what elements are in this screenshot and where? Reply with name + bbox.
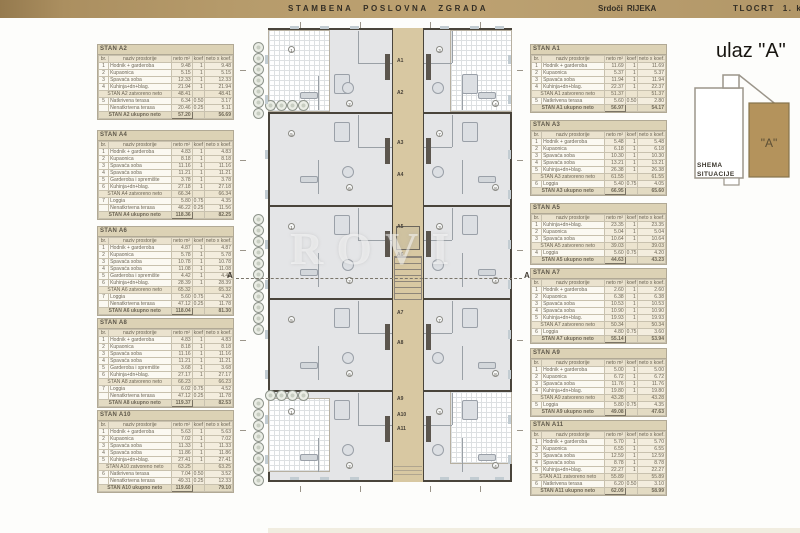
wall xyxy=(424,390,512,392)
window-mark xyxy=(265,280,268,289)
dimension-tick xyxy=(517,70,523,71)
kitchen-counter-icon xyxy=(426,138,431,164)
dimension-tick xyxy=(430,486,431,492)
bush-icon xyxy=(253,398,264,409)
bush-icon xyxy=(253,236,264,247)
room-number-badge: 4 xyxy=(492,100,499,107)
sofa-icon xyxy=(478,92,496,99)
dimension-tick xyxy=(240,250,246,251)
dimension-tick xyxy=(240,70,246,71)
window-mark xyxy=(265,415,268,424)
bush-icon xyxy=(253,453,264,464)
window-mark xyxy=(508,415,511,424)
dimension-tick xyxy=(480,22,481,28)
partition-wall xyxy=(358,31,359,63)
window-mark xyxy=(508,240,511,249)
wall xyxy=(268,205,392,207)
window-mark xyxy=(508,55,511,64)
partition-wall xyxy=(358,115,359,147)
partition-wall xyxy=(318,438,319,472)
window-mark xyxy=(265,150,268,159)
apartment-label-a1: A1 xyxy=(397,58,419,64)
bed-icon xyxy=(462,122,478,142)
wall xyxy=(268,390,392,392)
kitchen-counter-icon xyxy=(385,231,390,257)
window-mark xyxy=(265,190,268,199)
bush-icon xyxy=(287,390,298,401)
partition-wall xyxy=(462,346,463,380)
room-number-badge: 3 xyxy=(436,46,443,53)
window-mark xyxy=(265,330,268,339)
dimension-tick xyxy=(517,430,523,431)
room-number-badge: 3 xyxy=(436,408,443,415)
section-marker-right: A xyxy=(524,271,530,280)
table-icon xyxy=(432,352,444,364)
window-mark xyxy=(350,26,359,29)
room-number-badge: 1 xyxy=(288,223,295,230)
bed-icon xyxy=(334,308,350,328)
dimension-tick xyxy=(240,160,246,161)
bush-icon xyxy=(253,258,264,269)
window-mark xyxy=(508,280,511,289)
partition-wall xyxy=(462,160,463,194)
table-icon xyxy=(342,444,354,456)
dimension-tick xyxy=(240,430,246,431)
table-icon xyxy=(432,166,444,178)
apartment-label-a6: A6 xyxy=(397,252,419,258)
window-mark xyxy=(508,330,511,339)
apartment-label-a7: A7 xyxy=(397,310,419,316)
wall xyxy=(424,205,512,207)
window-mark xyxy=(470,26,479,29)
dimension-tick xyxy=(480,486,481,492)
bush-icon xyxy=(253,280,264,291)
bush-icon xyxy=(253,64,264,75)
bush-icon xyxy=(253,214,264,225)
window-mark xyxy=(508,370,511,379)
bush-icon xyxy=(253,75,264,86)
table-icon xyxy=(342,82,354,94)
apartment-label-a9: A9 xyxy=(397,396,419,402)
room-number-badge: 1 xyxy=(288,408,295,415)
partition-wall xyxy=(452,208,453,240)
bush-icon xyxy=(253,108,264,119)
partition-wall xyxy=(452,393,453,425)
floor-plan-drawing: 12345678123456781234A1A2A3A4A5A6A7A8A9A1… xyxy=(0,0,800,533)
room-number-badge: 8 xyxy=(492,370,499,377)
wall xyxy=(424,298,512,300)
partition-wall xyxy=(318,346,319,380)
bush-icon xyxy=(253,86,264,97)
apartment-label-a2: A2 xyxy=(397,90,419,96)
bed-icon xyxy=(462,308,478,328)
room-number-badge: 6 xyxy=(346,184,353,191)
window-mark xyxy=(508,455,511,464)
sofa-icon xyxy=(478,269,496,276)
partition-wall xyxy=(462,253,463,287)
room-number-badge: 1 xyxy=(288,46,295,53)
bush-icon xyxy=(276,100,287,111)
bush-icon xyxy=(253,97,264,108)
apartment-label-a11: A11 xyxy=(397,426,419,432)
partition-wall xyxy=(452,115,453,147)
entrance-steps-icon xyxy=(394,466,422,478)
partition-wall xyxy=(318,160,319,194)
window-mark xyxy=(290,477,299,480)
window-mark xyxy=(495,477,504,480)
terrace-area xyxy=(450,30,512,112)
apartment-label-a3: A3 xyxy=(397,140,419,146)
partition-wall xyxy=(318,76,319,110)
window-mark xyxy=(440,26,449,29)
room-number-badge: 5 xyxy=(288,130,295,137)
bush-icon xyxy=(276,390,287,401)
room-number-badge: 7 xyxy=(436,316,443,323)
apartment-label-a10: A10 xyxy=(397,412,419,418)
bush-icon xyxy=(253,225,264,236)
table-icon xyxy=(432,82,444,94)
terrace-area xyxy=(268,398,330,472)
window-mark xyxy=(350,477,359,480)
sofa-icon xyxy=(300,454,318,461)
dimension-tick xyxy=(517,160,523,161)
kitchen-counter-icon xyxy=(426,54,431,80)
window-mark xyxy=(265,240,268,249)
kitchen-counter-icon xyxy=(426,324,431,350)
kitchen-counter-icon xyxy=(385,324,390,350)
bush-icon xyxy=(253,291,264,302)
bush-icon xyxy=(253,442,264,453)
table-icon xyxy=(432,444,444,456)
partition-wall xyxy=(452,301,453,333)
kitchen-counter-icon xyxy=(426,231,431,257)
window-mark xyxy=(265,370,268,379)
kitchen-counter-icon xyxy=(426,416,431,442)
bed-icon xyxy=(334,400,350,420)
bush-icon xyxy=(253,420,264,431)
window-mark xyxy=(290,26,299,29)
window-mark xyxy=(265,55,268,64)
apartment-label-a5: A5 xyxy=(397,224,419,230)
bush-icon xyxy=(253,475,264,486)
room-number-badge: 4 xyxy=(492,462,499,469)
window-mark xyxy=(495,26,504,29)
apartment-label-a8: A8 xyxy=(397,340,419,346)
wall xyxy=(268,298,392,300)
dimension-tick xyxy=(360,486,361,492)
kitchen-counter-icon xyxy=(385,138,390,164)
apartment-label-a4: A4 xyxy=(397,172,419,178)
window-mark xyxy=(265,95,268,104)
bush-icon xyxy=(298,100,309,111)
dimension-tick xyxy=(240,340,246,341)
bush-icon xyxy=(287,100,298,111)
partition-wall xyxy=(358,393,359,425)
bush-icon xyxy=(253,313,264,324)
section-cut-line xyxy=(236,278,522,279)
terrace-area xyxy=(268,30,330,112)
partition-wall xyxy=(358,208,359,240)
sofa-icon xyxy=(300,269,318,276)
bed-icon xyxy=(334,215,350,235)
wall xyxy=(424,112,512,114)
bush-icon xyxy=(253,53,264,64)
bush-icon xyxy=(253,431,264,442)
dimension-tick xyxy=(360,22,361,28)
bush-icon xyxy=(253,409,264,420)
window-mark xyxy=(470,477,479,480)
bed-icon xyxy=(462,74,478,94)
dimension-tick xyxy=(430,22,431,28)
window-mark xyxy=(508,150,511,159)
dimension-tick xyxy=(517,340,523,341)
section-marker-left: A xyxy=(227,271,233,280)
floor-plan-sheet: STAMBENA POSLOVNA ZGRADA SrdočiRIJEKA TL… xyxy=(0,0,800,533)
table-icon xyxy=(432,259,444,271)
window-mark xyxy=(320,477,329,480)
table-icon xyxy=(342,352,354,364)
sofa-icon xyxy=(478,454,496,461)
bush-icon xyxy=(253,42,264,53)
bush-icon xyxy=(298,390,309,401)
sofa-icon xyxy=(478,176,496,183)
window-mark xyxy=(508,190,511,199)
partition-wall xyxy=(452,31,453,63)
room-number-badge: 6 xyxy=(346,370,353,377)
bush-icon xyxy=(253,324,264,335)
sofa-icon xyxy=(300,176,318,183)
wall xyxy=(268,112,392,114)
partition-wall xyxy=(358,301,359,333)
room-number-badge: 3 xyxy=(436,223,443,230)
kitchen-counter-icon xyxy=(385,416,390,442)
dimension-tick xyxy=(517,250,523,251)
window-mark xyxy=(508,95,511,104)
bush-icon xyxy=(253,302,264,313)
bed-icon xyxy=(334,122,350,142)
terrace-area xyxy=(450,390,512,464)
room-number-badge: 2 xyxy=(346,100,353,107)
table-icon xyxy=(342,259,354,271)
bush-icon xyxy=(253,247,264,258)
table-icon xyxy=(342,166,354,178)
room-number-badge: 7 xyxy=(436,130,443,137)
room-number-badge: 8 xyxy=(492,184,499,191)
dimension-tick xyxy=(300,22,301,28)
bush-icon xyxy=(253,464,264,475)
dimension-tick xyxy=(300,486,301,492)
bed-icon xyxy=(462,215,478,235)
window-mark xyxy=(320,26,329,29)
partition-wall xyxy=(462,438,463,472)
kitchen-counter-icon xyxy=(385,54,390,80)
bed-icon xyxy=(462,400,478,420)
sofa-icon xyxy=(300,362,318,369)
window-mark xyxy=(440,477,449,480)
window-mark xyxy=(265,455,268,464)
room-number-badge: 2 xyxy=(346,462,353,469)
sofa-icon xyxy=(478,362,496,369)
partition-wall xyxy=(318,253,319,287)
sofa-icon xyxy=(300,92,318,99)
bush-icon xyxy=(265,390,276,401)
room-number-badge: 5 xyxy=(288,316,295,323)
